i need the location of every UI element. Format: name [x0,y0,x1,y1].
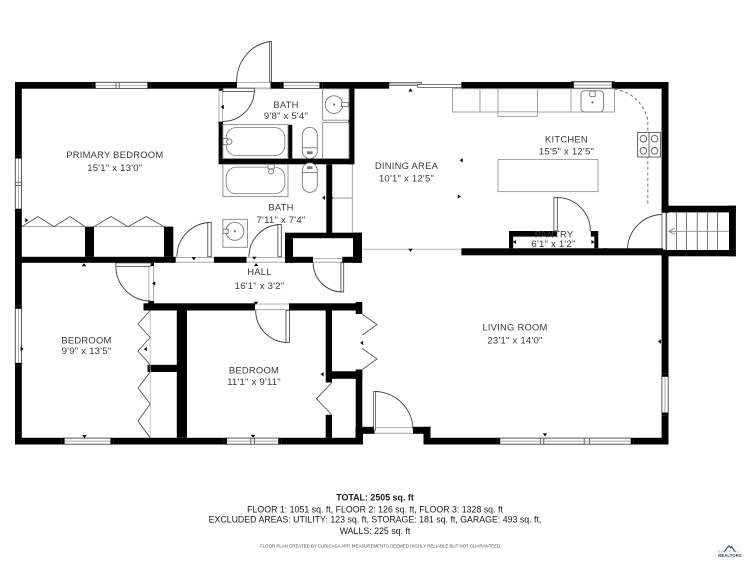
svg-text:BATH: BATH [273,99,298,110]
svg-text:WALLS: 225 sq. ft: WALLS: 225 sq. ft [340,526,411,536]
svg-text:BEDROOM: BEDROOM [61,334,111,345]
svg-text:DINING AREA: DINING AREA [375,160,439,171]
svg-text:BEDROOM: BEDROOM [229,364,279,375]
svg-text:9'9" x 13'5": 9'9" x 13'5" [62,346,112,357]
svg-text:9'8" x 5'4": 9'8" x 5'4" [264,111,308,122]
svg-text:23'1" x 14'0": 23'1" x 14'0" [487,336,542,347]
svg-text:FLOOR 1: 1051 sq. ft, FLOOR 2:: FLOOR 1: 1051 sq. ft, FLOOR 2: 126 sq. f… [247,504,503,514]
svg-text:KITCHEN: KITCHEN [545,133,588,144]
svg-text:15'1" x 13'0": 15'1" x 13'0" [87,163,142,174]
svg-text:10'1" x 12'5": 10'1" x 12'5" [379,174,434,185]
svg-text:REALTORS: REALTORS [718,553,742,558]
svg-text:16'1" x 3'2": 16'1" x 3'2" [235,281,285,292]
svg-text:11'1" x 9'11": 11'1" x 9'11" [227,377,281,388]
svg-text:TOTAL: 2505 sq. ft: TOTAL: 2505 sq. ft [336,492,414,502]
svg-text:15'5" x 12'5": 15'5" x 12'5" [539,147,594,158]
svg-text:7'11" x 7'4": 7'11" x 7'4" [257,215,306,226]
svg-text:FLOOR PLAN CREATED BY CUBICASA: FLOOR PLAN CREATED BY CUBICASA APP. MEAS… [260,543,501,548]
svg-text:EXCLUDED AREAS: UTILITY: 123 s: EXCLUDED AREAS: UTILITY: 123 sq. ft, STO… [209,515,542,525]
svg-text:LIVING ROOM: LIVING ROOM [482,322,547,333]
svg-text:6'1" x 1'2": 6'1" x 1'2" [531,239,575,250]
svg-text:PRIMARY BEDROOM: PRIMARY BEDROOM [66,149,163,160]
svg-text:BATH: BATH [268,202,293,213]
svg-text:HALL: HALL [247,266,271,277]
